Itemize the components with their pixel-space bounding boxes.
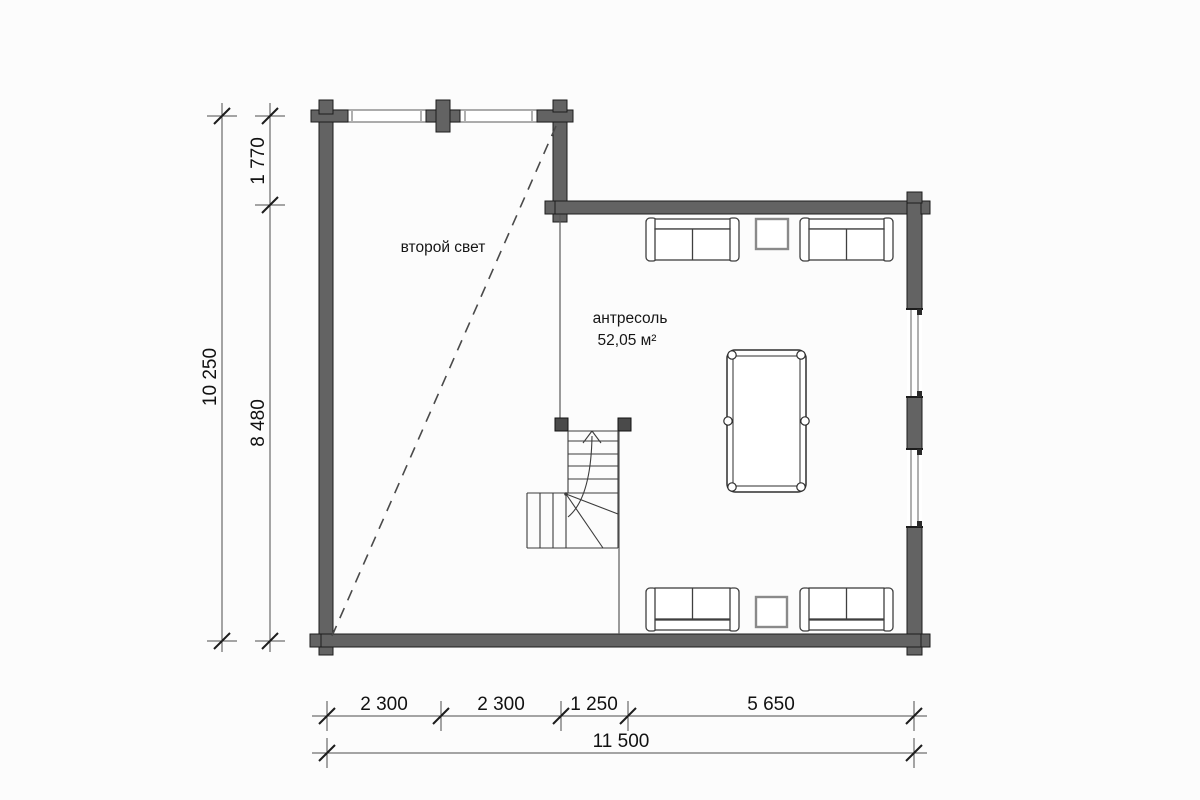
label-mezzanine-area: 52,05 м² bbox=[598, 332, 657, 349]
dim-left-upper: 1 770 bbox=[248, 137, 269, 185]
stair-post-left bbox=[555, 418, 568, 431]
dim-bottom-seg-2: 2 300 bbox=[477, 694, 525, 715]
dimensions-bottom: 2 300 2 300 1 250 5 650 11 500 bbox=[312, 694, 927, 768]
dim-left-outer: 10 250 bbox=[200, 348, 221, 406]
dim-bottom-total: 11 500 bbox=[593, 731, 650, 752]
wall-mezzanine-north bbox=[553, 201, 921, 214]
dim-bottom-seg-4: 5 650 bbox=[747, 694, 795, 715]
second-light-void-diagonal bbox=[332, 126, 556, 636]
floor-plan-page: второй свет антресоль 52,05 м² 10 250 1 … bbox=[0, 0, 1200, 800]
label-mezzanine: антресоль bbox=[593, 310, 668, 327]
billiard-table bbox=[724, 350, 809, 492]
mezzanine-floor-edges bbox=[560, 215, 619, 634]
side-table-top bbox=[756, 219, 788, 249]
sofa-bottom-left bbox=[646, 588, 739, 631]
window-east-upper bbox=[906, 309, 923, 397]
dim-bottom-seg-3: 1 250 bbox=[570, 694, 618, 715]
stair-post-right bbox=[618, 418, 631, 431]
dim-bottom-seg-1: 2 300 bbox=[360, 694, 408, 715]
floor-plan-drawing: второй свет антресоль 52,05 м² 10 250 1 … bbox=[0, 0, 1200, 800]
wall-east-lower bbox=[907, 527, 922, 647]
side-table-bottom bbox=[756, 597, 787, 627]
staircase bbox=[527, 418, 631, 548]
wall-second-light-east bbox=[553, 109, 567, 215]
wall-west bbox=[319, 109, 333, 647]
walls bbox=[310, 100, 930, 655]
log-corner-joints bbox=[310, 100, 930, 655]
wall-south bbox=[319, 634, 922, 647]
window-east-lower bbox=[906, 449, 923, 527]
wall-east-upper bbox=[907, 201, 922, 309]
sofa-top-left bbox=[646, 218, 739, 261]
label-second-light: второй свет bbox=[401, 239, 486, 256]
wall-east-pier bbox=[907, 397, 922, 449]
dimensions-left: 10 250 1 770 8 480 bbox=[200, 103, 285, 652]
sofa-bottom-right bbox=[800, 588, 893, 631]
sofa-top-right bbox=[800, 218, 893, 261]
dim-left-lower: 8 480 bbox=[248, 399, 269, 447]
